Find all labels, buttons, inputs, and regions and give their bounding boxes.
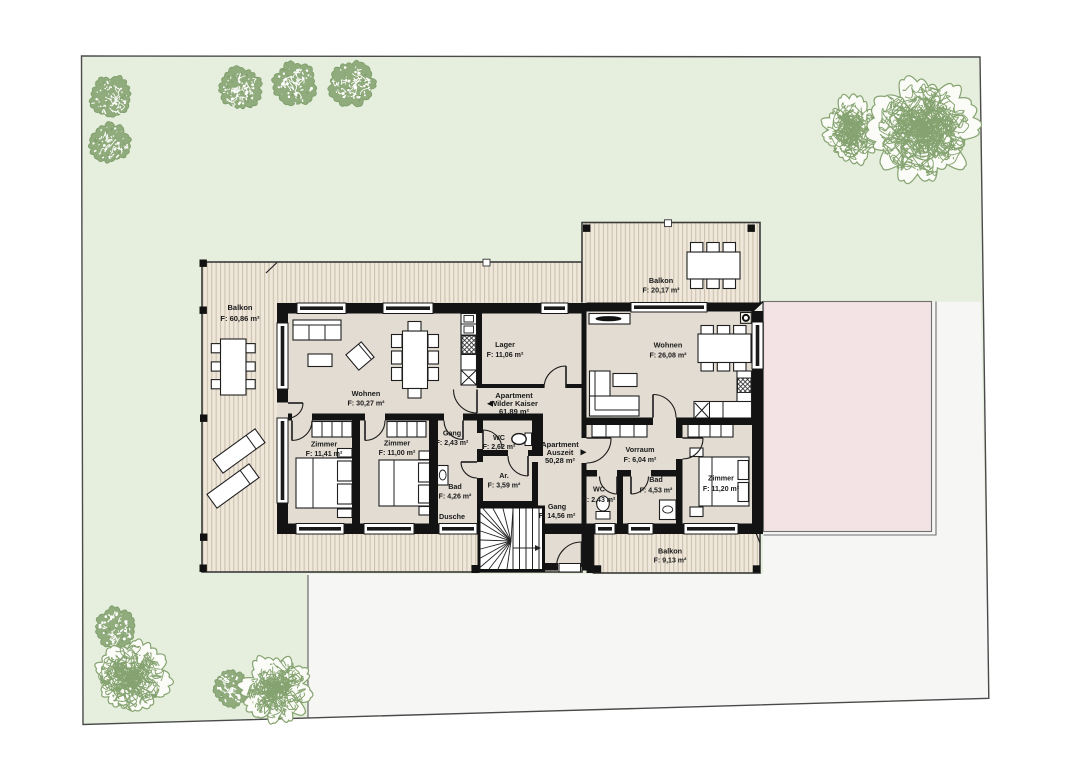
svg-text:F: 9,13 m²: F: 9,13 m² bbox=[654, 558, 687, 565]
svg-text:F: 60,86 m²: F: 60,86 m² bbox=[220, 314, 260, 323]
svg-text:WC: WC bbox=[493, 433, 505, 442]
svg-text:F: 30,27 m²: F: 30,27 m² bbox=[347, 400, 385, 408]
svg-text:50,28 m²: 50,28 m² bbox=[545, 456, 576, 465]
svg-text:F: 14,56 m²: F: 14,56 m² bbox=[539, 513, 576, 520]
svg-text:F: 11,00 m²: F: 11,00 m² bbox=[379, 449, 416, 457]
svg-text:61,89 m²: 61,89 m² bbox=[499, 407, 530, 416]
svg-text:F: 20,17 m²: F: 20,17 m² bbox=[642, 286, 680, 294]
svg-text:F: 3,59 m²: F: 3,59 m² bbox=[488, 483, 521, 490]
svg-text:F: 2,43 m²: F: 2,43 m² bbox=[583, 497, 616, 504]
svg-text:F: 11,06 m²: F: 11,06 m² bbox=[487, 351, 524, 359]
svg-text:Balkon: Balkon bbox=[227, 303, 252, 312]
svg-text:Gang: Gang bbox=[548, 502, 566, 511]
svg-text:F: 6,04 m²: F: 6,04 m² bbox=[624, 457, 657, 464]
svg-text:F: 11,20 m²: F: 11,20 m² bbox=[703, 486, 740, 493]
svg-text:F: 26,08 m²: F: 26,08 m² bbox=[649, 352, 687, 360]
svg-text:Bad: Bad bbox=[649, 475, 663, 484]
svg-text:Wohnen: Wohnen bbox=[352, 389, 381, 398]
svg-text:F: 11,41 m²: F: 11,41 m² bbox=[306, 450, 343, 458]
svg-text:Wohnen: Wohnen bbox=[654, 341, 683, 350]
svg-text:Zimmer: Zimmer bbox=[384, 439, 411, 448]
svg-text:Gang: Gang bbox=[443, 429, 461, 438]
svg-text:F: 4,53 m²: F: 4,53 m² bbox=[640, 488, 673, 495]
svg-text:WC: WC bbox=[593, 485, 605, 494]
svg-text:Balkon: Balkon bbox=[649, 276, 673, 285]
svg-text:F: 2,62 m²: F: 2,62 m² bbox=[483, 444, 516, 451]
svg-text:Zimmer: Zimmer bbox=[311, 440, 338, 449]
svg-text:F: 2,43 m²: F: 2,43 m² bbox=[436, 440, 469, 447]
svg-text:Ar.: Ar. bbox=[499, 471, 509, 480]
svg-text:Balkon: Balkon bbox=[658, 547, 682, 556]
svg-text:Vorraum: Vorraum bbox=[625, 445, 654, 454]
svg-text:Bad: Bad bbox=[448, 482, 462, 491]
svg-text:Dusche: Dusche bbox=[439, 512, 465, 521]
svg-text:Zimmer: Zimmer bbox=[708, 474, 734, 483]
svg-text:F: 4,26 m²: F: 4,26 m² bbox=[439, 493, 472, 500]
svg-text:Lager: Lager bbox=[495, 340, 515, 349]
